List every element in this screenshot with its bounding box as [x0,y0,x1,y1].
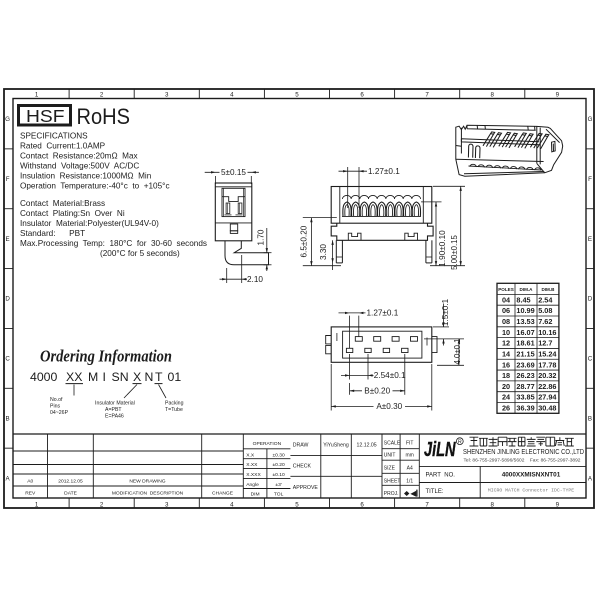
svg-text:36.39: 36.39 [516,403,534,412]
svg-text:20.32: 20.32 [538,371,556,380]
svg-text:1.27±0.1: 1.27±0.1 [368,167,400,176]
svg-text:2.10: 2.10 [247,275,263,284]
svg-text:20: 20 [502,382,510,391]
svg-text:F: F [6,176,10,183]
svg-text:DIM: DIM [251,492,260,498]
svg-text:X.XXX: X.XXX [246,472,261,478]
svg-text:10.99: 10.99 [516,306,534,315]
svg-text:Operation Temperature:-40°c: Operation Temperature:-40°c to +105°c [20,182,170,191]
svg-text:5.00±0.15: 5.00±0.15 [450,235,459,270]
svg-text:E: E [588,236,592,243]
svg-text:mm: mm [406,453,414,459]
svg-text:15.24: 15.24 [538,349,557,358]
svg-text:3: 3 [165,92,169,99]
svg-text:Insulation Resistance:1000MΩ: Insulation Resistance:1000MΩ Min [20,172,152,181]
svg-text:8: 8 [491,501,495,508]
svg-text:Withstand Voltage:500V AC/DC: Withstand Voltage:500V AC/DC [20,162,139,171]
svg-text:9: 9 [556,92,560,99]
svg-text:24: 24 [502,393,511,402]
svg-text:16.07: 16.07 [516,328,534,337]
svg-text:SHEET: SHEET [384,478,401,484]
svg-text:SPECIFICATIONS: SPECIFICATIONS [20,132,88,141]
svg-text:Pins: Pins [50,404,60,410]
svg-text:X.X: X.X [246,452,255,458]
svg-text:06: 06 [502,306,510,315]
svg-text:REV: REV [25,491,36,497]
svg-text:E=PA46: E=PA46 [105,414,124,420]
svg-text:Packing: Packing [165,401,184,407]
svg-text:MICRO MATCH Connector IDC-TYPE: MICRO MATCH Connector IDC-TYPE [488,488,574,494]
svg-text:1.70: 1.70 [257,229,266,245]
svg-text:4: 4 [230,92,234,99]
svg-text:13.53: 13.53 [516,317,534,326]
svg-text:7.62: 7.62 [538,317,552,326]
svg-text:YiYuSheng: YiYuSheng [323,443,349,449]
svg-text:8.45: 8.45 [516,295,530,304]
svg-text:2012.12.05: 2012.12.05 [58,478,83,484]
svg-text:Insulator Material: Insulator Material [95,401,135,407]
svg-text:12.12.05: 12.12.05 [356,443,376,449]
svg-text:(200°C for 5 seconds): (200°C for 5 seconds) [100,249,180,258]
svg-text:16: 16 [502,360,510,369]
svg-text:DIM.B: DIM.B [541,287,555,292]
svg-text:HSF: HSF [26,106,65,126]
svg-text:±0.20: ±0.20 [272,462,284,468]
svg-text:18: 18 [502,371,510,380]
svg-text:1.5±0.1: 1.5±0.1 [441,298,450,326]
svg-text:CHECK: CHECK [293,463,312,469]
svg-text:APPROVE: APPROVE [293,485,319,491]
svg-text:2.54: 2.54 [538,295,553,304]
svg-text:1: 1 [35,501,39,508]
svg-text:XX: XX [66,370,82,384]
svg-text:5: 5 [295,92,299,99]
svg-text:D: D [588,296,593,303]
svg-text:D: D [5,296,10,303]
svg-text:I: I [103,370,106,384]
svg-text:TOL: TOL [274,492,284,498]
svg-text:01: 01 [168,370,182,384]
svg-text:G: G [588,116,593,123]
svg-text:1: 1 [35,92,39,99]
svg-text:A: A [588,475,593,482]
svg-text:JiLN: JiLN [424,438,456,461]
svg-text:PROJ.: PROJ. [384,491,399,497]
svg-text:10.16: 10.16 [538,328,556,337]
svg-text:6: 6 [360,501,364,508]
svg-text:14: 14 [502,349,511,358]
svg-text:17.78: 17.78 [538,360,556,369]
svg-text:C: C [588,356,593,363]
svg-text:DATE: DATE [64,491,77,497]
svg-text:SCALE: SCALE [384,441,401,447]
svg-text:Contact Resistance:20mΩ Max: Contact Resistance:20mΩ Max [20,152,138,161]
svg-text:FIT: FIT [406,441,414,447]
svg-text:SHENZHEN JINLING ELECTRONIC CO: SHENZHEN JINLING ELECTRONIC CO.,LTD [463,449,584,456]
svg-text:NEW DRAWING: NEW DRAWING [129,478,165,484]
svg-text:04~26P: 04~26P [50,410,69,416]
svg-text:PART NO.: PART NO. [426,472,456,478]
svg-text:9: 9 [556,501,560,508]
svg-text:3.30: 3.30 [319,244,328,260]
svg-text:TITLE:: TITLE: [426,489,444,495]
svg-text:No.of: No.of [50,397,63,403]
svg-text:Insulator Material:Polyester(: Insulator Material:Polyester(UL94V-0) [20,219,159,228]
svg-text:33.85: 33.85 [516,393,534,402]
svg-text:8: 8 [491,92,495,99]
svg-text:Tel: 86-755-2997-5896/5602: Tel: 86-755-2997-5896/5602 Fax: 86-755-2… [464,457,581,462]
svg-text:12.7: 12.7 [538,339,552,348]
svg-text:4.0±0.1: 4.0±0.1 [453,339,462,365]
svg-text:DIM.A: DIM.A [519,287,533,292]
svg-text:POLES: POLES [498,287,514,292]
svg-text:CHANGE: CHANGE [212,491,234,497]
svg-text:5±0.15: 5±0.15 [221,168,246,177]
svg-text:27.94: 27.94 [538,393,557,402]
svg-text:MODIFICATION DESCRIPTION: MODIFICATION DESCRIPTION [112,491,184,497]
svg-text:21.15: 21.15 [516,349,534,358]
svg-text:A: A [6,475,11,482]
svg-text:4000: 4000 [30,370,58,384]
svg-text:2: 2 [100,92,104,99]
svg-text:SIZE: SIZE [384,465,396,471]
svg-text:1/1: 1/1 [406,478,413,484]
svg-text:Contact Material:Brass: Contact Material:Brass [20,199,105,208]
svg-text:6.5±0.20: 6.5±0.20 [300,225,309,257]
svg-text:RoHS: RoHS [77,104,131,129]
svg-text:Standard: PBT: Standard: PBT [20,229,85,238]
svg-text:Max.Processing Temp: 180°C: Max.Processing Temp: 180°C for 30-60 sec… [20,239,207,248]
svg-text:A0: A0 [27,478,33,484]
svg-text:N: N [145,370,154,384]
svg-text:T: T [155,370,163,384]
svg-text:1.27±0.1: 1.27±0.1 [367,309,399,318]
svg-text:12: 12 [502,339,510,348]
svg-text:6: 6 [360,92,364,99]
svg-text:B: B [588,415,592,422]
svg-text:7: 7 [425,92,429,99]
svg-text:26: 26 [502,403,510,412]
svg-text:04: 04 [502,295,511,304]
svg-text:10: 10 [502,328,510,337]
svg-text:1.90±0.10: 1.90±0.10 [438,230,447,267]
svg-text:26.23: 26.23 [516,371,534,380]
svg-text:X: X [133,370,141,384]
svg-text:B: B [6,415,10,422]
svg-text:18.61: 18.61 [516,339,534,348]
svg-text:E: E [6,236,10,243]
svg-text:2.54±0.1: 2.54±0.1 [374,371,406,380]
svg-text:C: C [5,356,10,363]
svg-text:±0.10: ±0.10 [272,472,284,478]
svg-text:B±0.20: B±0.20 [364,386,390,395]
svg-text:Rated Current:1.0AMP: Rated Current:1.0AMP [20,142,106,151]
svg-text:28.77: 28.77 [516,382,534,391]
svg-text:30.48: 30.48 [538,403,556,412]
svg-text:X.XX: X.XX [246,462,258,468]
svg-text:UNIT: UNIT [384,453,396,459]
svg-text:A±0.30: A±0.30 [376,402,402,411]
svg-text:2: 2 [100,501,104,508]
svg-text:F: F [588,176,592,183]
svg-text:Angle: Angle [246,482,259,488]
svg-text:5: 5 [295,501,299,508]
svg-text:±0.30: ±0.30 [272,452,284,458]
svg-text:23.69: 23.69 [516,360,534,369]
svg-text:SN: SN [112,370,129,384]
svg-text:G: G [5,116,10,123]
svg-text:Ordering Information: Ordering Information [40,347,172,366]
svg-text:5.08: 5.08 [538,306,552,315]
svg-text:Contact Plating:Sn Over Ni: Contact Plating:Sn Over Ni [20,209,125,218]
svg-text:08: 08 [502,317,510,326]
svg-text:3: 3 [165,501,169,508]
svg-text:R: R [458,439,462,445]
svg-text:4000XXMISNXNT01: 4000XXMISNXNT01 [502,471,561,478]
svg-text:DRAW: DRAW [293,443,309,449]
svg-text:A=PBT: A=PBT [105,407,122,413]
svg-text:M: M [88,370,98,384]
svg-text:7: 7 [425,501,429,508]
svg-text:T=Tube: T=Tube [165,407,183,413]
svg-text:OPERATION: OPERATION [253,441,282,447]
svg-text:22.86: 22.86 [538,382,556,391]
svg-text:4: 4 [230,501,234,508]
svg-text:A4: A4 [407,465,413,471]
svg-text:±3′: ±3′ [275,482,281,488]
